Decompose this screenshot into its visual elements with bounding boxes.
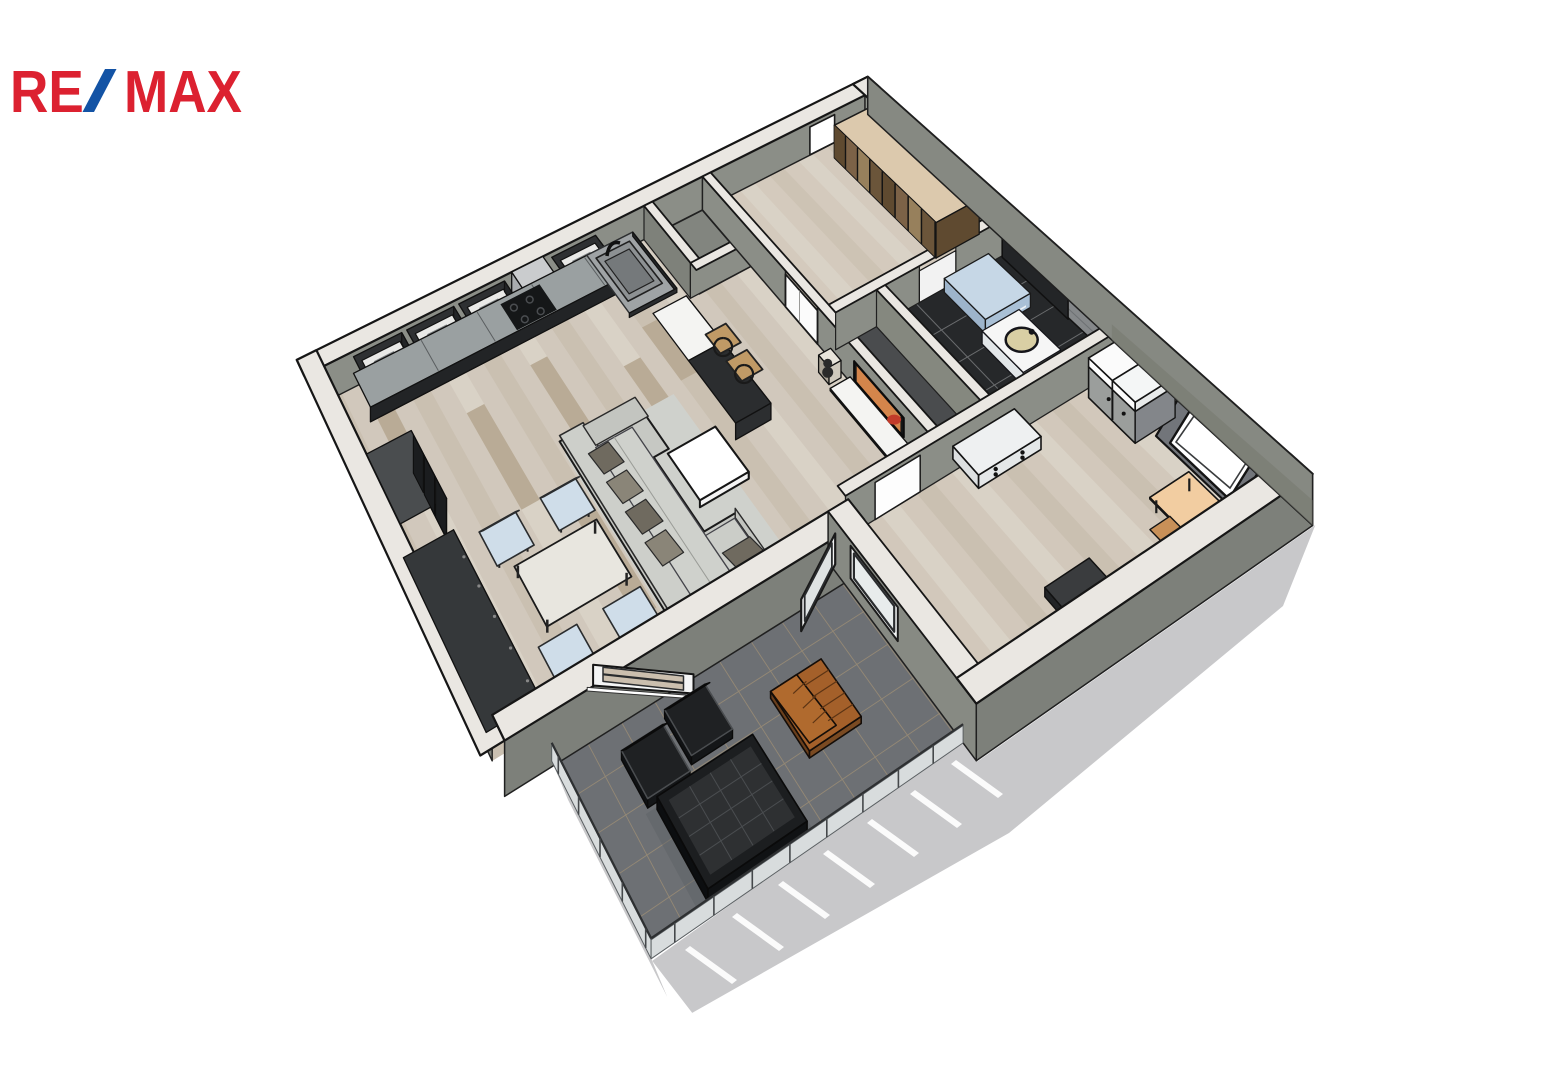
svg-text:MAX: MAX <box>124 58 242 124</box>
svg-text:RE: RE <box>10 58 84 124</box>
